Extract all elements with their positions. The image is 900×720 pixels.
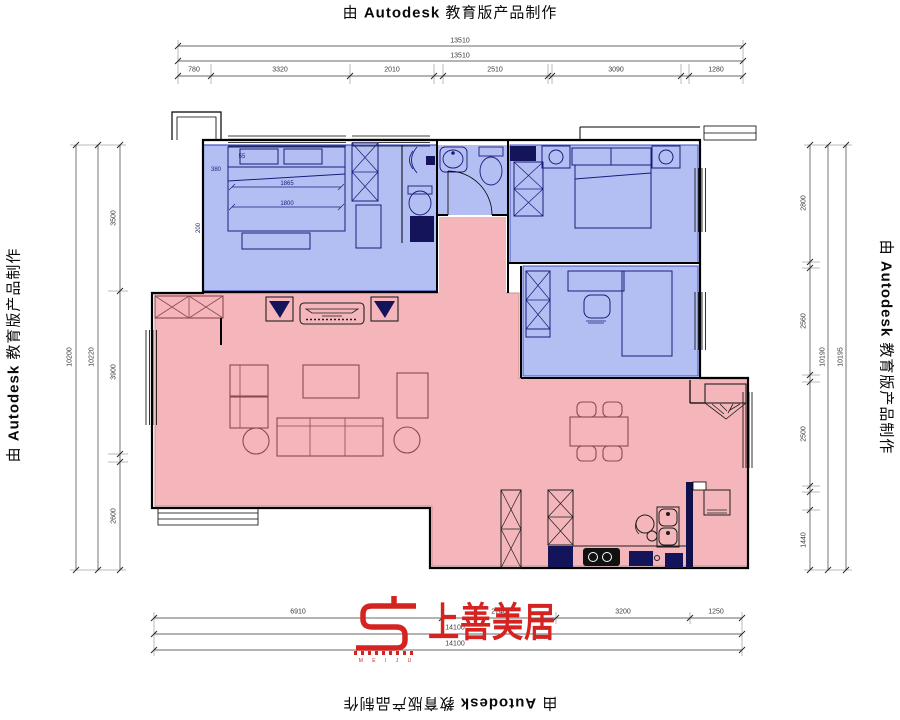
logo-dots xyxy=(354,651,413,655)
watermark-prefix: 由 xyxy=(343,5,359,22)
ensuite-shower-block xyxy=(410,216,434,242)
dim-bed-1800: 1800 xyxy=(280,201,293,207)
dim-left-seg-2: 3900 xyxy=(111,364,118,380)
dim-right-seg-3: 2500 xyxy=(801,426,808,442)
watermark-left: 由 Autodesk 教育版产品制作 xyxy=(3,248,24,463)
oven-icon xyxy=(629,551,653,566)
dim-bed-200: 200 xyxy=(196,223,202,233)
dim-left-chain-1: 10200 xyxy=(67,347,74,366)
watermark-suffix: 教育版产品制作 xyxy=(343,695,455,712)
dim-top-total-2: 13510 xyxy=(450,53,469,60)
logo-brand-letters: M E I J U xyxy=(352,658,422,664)
corridor-fill xyxy=(439,217,506,295)
wall-kitchen-stub xyxy=(693,482,706,490)
sink-drain-1 xyxy=(667,513,670,516)
watermark-suffix: 教育版产品制作 xyxy=(445,5,557,22)
watermark-prefix: 由 xyxy=(541,695,557,712)
basin-faucet xyxy=(452,152,455,155)
dim-right-chain-2: 10195 xyxy=(838,347,845,366)
watermark-brand: Autodesk xyxy=(878,261,895,337)
dim-top-seg-5: 3090 xyxy=(608,67,624,74)
logo-glyph xyxy=(354,596,416,655)
dim-bed-55: 55 xyxy=(239,154,246,160)
window-bottom-living xyxy=(158,508,258,525)
dim-top-seg-6: 1280 xyxy=(708,67,724,74)
watermark-suffix: 教育版产品制作 xyxy=(878,342,895,454)
dim-lines-top xyxy=(178,46,743,76)
dim-left-seg-3: 2600 xyxy=(111,508,118,524)
dim-right-chain-1: 10190 xyxy=(820,347,827,366)
dim-bottom-seg-1: 6910 xyxy=(290,609,306,616)
dim-left-seg-1: 3500 xyxy=(111,210,118,226)
balcony-top-left xyxy=(172,112,221,140)
dim-top-seg-3: 2010 xyxy=(384,67,400,74)
watermark-right: 由 Autodesk 教育版产品制作 xyxy=(877,240,898,455)
dim-right-seg-4: 1440 xyxy=(801,532,808,548)
dim-bottom-seg-4: 1250 xyxy=(708,609,724,616)
watermark-bottom: 由 Autodesk 教育版产品制作 xyxy=(343,694,558,715)
watermark-brand: Autodesk xyxy=(460,695,536,712)
watermark-prefix: 由 xyxy=(6,446,23,462)
dim-lines-left xyxy=(76,145,120,570)
appliance-block xyxy=(665,553,683,568)
watermark-top: 由 Autodesk 教育版产品制作 xyxy=(343,2,558,23)
floorplan-canvas: 由 Autodesk 教育版产品制作 由 Autodesk 教育版产品制作 由 … xyxy=(0,0,900,720)
logo-s-mark xyxy=(356,596,416,648)
wall-kitchen-column xyxy=(686,482,693,568)
dim-bed-1865: 1865 xyxy=(280,181,293,187)
balcony-top-left-inner xyxy=(177,117,216,140)
base-cabinet-block xyxy=(548,546,573,567)
dim-right-seg-1: 2800 xyxy=(801,195,808,211)
bay-top-right xyxy=(580,127,700,140)
dim-left-chain-2: 10220 xyxy=(89,347,96,366)
logo-brand-name: 上善美居 xyxy=(428,600,556,646)
watermark-brand: Autodesk xyxy=(364,5,440,22)
dim-top-seg-4: 2510 xyxy=(487,67,503,74)
ensuite-fixture-block xyxy=(426,156,435,165)
dim-top-seg-2: 3320 xyxy=(272,67,288,74)
watermark-prefix: 由 xyxy=(878,240,895,256)
watermark-brand: Autodesk xyxy=(6,365,23,441)
master-cabinet-block xyxy=(510,146,536,161)
dim-top-total-1: 13510 xyxy=(450,38,469,45)
dim-right-seg-2: 2560 xyxy=(801,313,808,329)
sink-drain-2 xyxy=(667,532,670,535)
dim-bottom-seg-3: 3200 xyxy=(615,609,631,616)
dim-bed-380: 380 xyxy=(211,167,221,173)
dim-top-seg-1: 780 xyxy=(188,67,200,74)
watermark-suffix: 教育版产品制作 xyxy=(6,248,23,360)
